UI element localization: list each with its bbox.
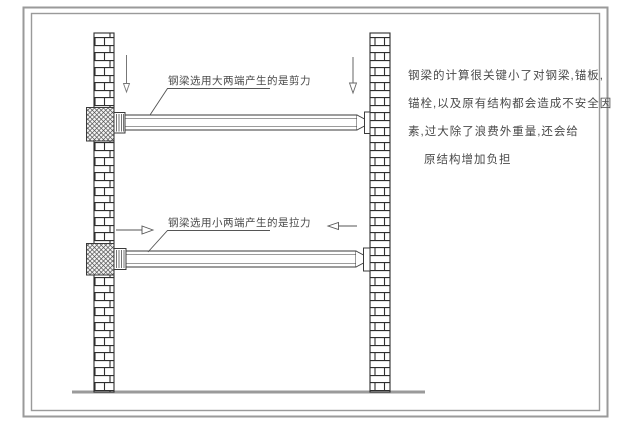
upper-steel-beam [125,115,357,130]
diagram-page: 钢梁选用大两端产生的是剪力 钢梁选用小两端产生的是拉力 钢梁的计算很关键小了对钢… [0,0,621,434]
lower-end-connector [114,249,126,270]
upper-label-leader-line [150,89,270,116]
note-text-block: 钢梁的计算很关键小了对钢梁,锚板, 锚栓,以及原有结构都会造成不安全因 素,过大… [408,68,612,166]
tension-arrow-right-icon [116,226,153,234]
left-brick-wall [94,33,114,392]
shear-arrow-down-left-icon [124,55,130,92]
note-line-2: 锚栓,以及原有结构都会造成不安全因 [408,96,612,110]
upper-beam-assembly [87,108,371,142]
lower-beam-end-wedge [356,251,364,267]
note-line-1: 钢梁的计算很关键小了对钢梁,锚板, [408,68,604,82]
note-line-3: 素,过大除了浪费外重量,还会给 [408,124,579,138]
lower-anchor-block [87,244,115,276]
upper-beam-label: 钢梁选用大两端产生的是剪力 [168,74,311,87]
lower-beam-assembly [87,244,371,276]
upper-end-connector [114,113,125,134]
lower-end-plate [364,248,371,271]
upper-beam-end-wedge [357,115,365,130]
diagram-canvas: 钢梁选用大两端产生的是剪力 钢梁选用小两端产生的是拉力 钢梁的计算很关键小了对钢… [0,0,621,434]
shear-arrow-down-right-icon [350,57,357,93]
upper-anchor-block [87,108,115,142]
lower-beam-label: 钢梁选用小两端产生的是拉力 [168,216,311,229]
lower-label-leader-line [148,231,270,253]
note-line-4: 原结构增加负担 [424,152,512,166]
lower-steel-beam [126,251,356,267]
upper-end-plate [365,112,371,134]
tension-arrow-left-icon [328,223,357,230]
right-brick-wall [370,33,390,392]
